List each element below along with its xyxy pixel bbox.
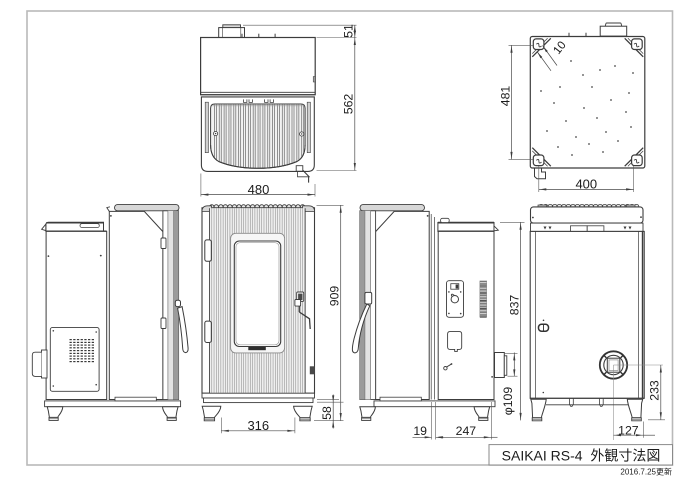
- svg-text:400: 400: [575, 177, 597, 192]
- svg-text:2016.7.25更新: 2016.7.25更新: [620, 467, 672, 477]
- svg-text:233: 233: [648, 380, 662, 401]
- svg-text:19: 19: [413, 424, 427, 438]
- svg-text:φ109: φ109: [501, 387, 515, 416]
- svg-text:127: 127: [618, 424, 639, 438]
- svg-text:SAIKAI RS-4 外観寸法図: SAIKAI RS-4 外観寸法図: [502, 447, 661, 463]
- svg-text:480: 480: [248, 182, 270, 197]
- svg-text:51: 51: [342, 24, 356, 38]
- svg-text:316: 316: [247, 418, 269, 433]
- svg-text:58: 58: [320, 406, 334, 420]
- svg-text:909: 909: [328, 286, 342, 307]
- svg-text:837: 837: [507, 295, 521, 316]
- svg-text:562: 562: [342, 94, 356, 115]
- svg-text:247: 247: [456, 424, 477, 438]
- svg-text:481: 481: [498, 86, 512, 107]
